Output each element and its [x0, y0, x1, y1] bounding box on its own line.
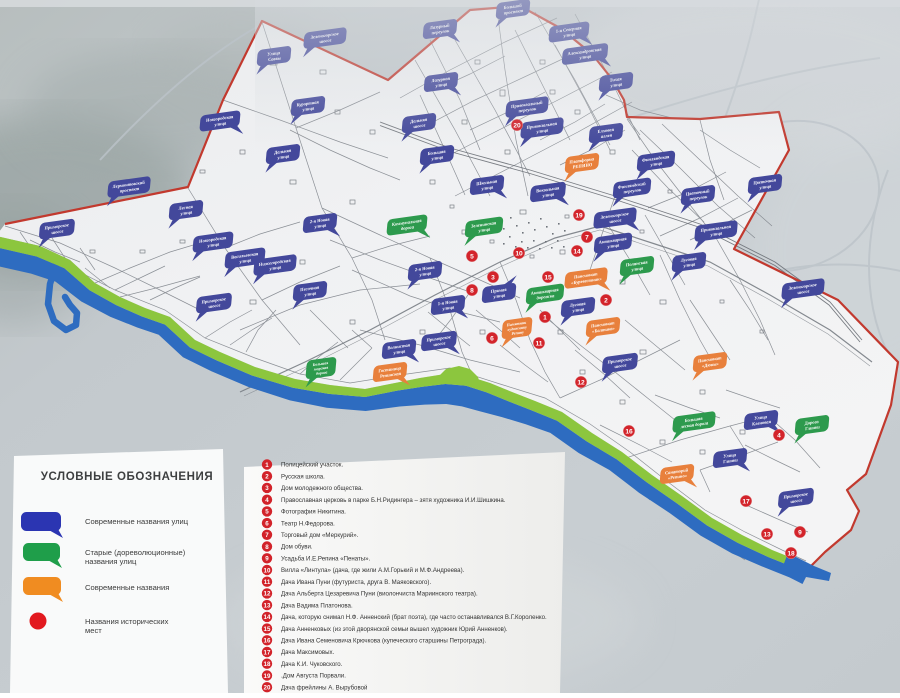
- svg-text:Современные названия: Современные названия: [85, 583, 169, 592]
- svg-text:14: 14: [264, 614, 271, 621]
- svg-text:12: 12: [577, 379, 585, 386]
- svg-text:3: 3: [491, 274, 495, 281]
- svg-text:мест: мест: [85, 626, 102, 635]
- svg-text:17: 17: [742, 498, 750, 505]
- svg-text:12: 12: [264, 591, 271, 598]
- svg-text:2: 2: [604, 297, 608, 304]
- svg-text:9: 9: [798, 529, 802, 536]
- svg-text:13: 13: [264, 602, 271, 609]
- svg-text:5: 5: [470, 253, 474, 260]
- svg-text:.Дом Августа Порвали.: .Дом Августа Порвали.: [281, 673, 346, 680]
- svg-text:15: 15: [264, 626, 271, 633]
- svg-text:7: 7: [265, 532, 269, 539]
- svg-text:Дом обуви.: Дом обуви.: [281, 544, 313, 551]
- svg-text:8: 8: [470, 287, 474, 294]
- svg-text:11: 11: [264, 579, 271, 586]
- svg-text:УСЛОВНЫЕ ОБОЗНАЧЕНИЯ: УСЛОВНЫЕ ОБОЗНАЧЕНИЯ: [41, 471, 214, 483]
- svg-text:16: 16: [264, 638, 271, 645]
- svg-text:20: 20: [264, 685, 271, 692]
- svg-text:Дача, которую снимал Н.Ф. Анне: Дача, которую снимал Н.Ф. Анненский (бра…: [281, 614, 547, 621]
- svg-text:4: 4: [777, 432, 781, 439]
- svg-text:Театр Н.Федорова.: Театр Н.Федорова.: [281, 520, 335, 527]
- svg-text:14: 14: [573, 248, 581, 255]
- svg-text:18: 18: [787, 550, 795, 557]
- svg-text:17: 17: [264, 649, 271, 656]
- svg-text:Дача Вадима Платонова.: Дача Вадима Платонова.: [281, 602, 353, 609]
- svg-text:Дача Ивана Семеновича Крючкова: Дача Ивана Семеновича Крючкова (купеческ…: [281, 638, 487, 645]
- svg-text:Православная церковь в парке Б: Православная церковь в парке Б.Н.Ридинге…: [281, 497, 506, 504]
- svg-text:Вилла «Линтула» (дача, где жил: Вилла «Линтула» (дача, где жили А.М.Горь…: [281, 567, 465, 574]
- svg-text:11: 11: [536, 340, 543, 347]
- svg-text:3: 3: [265, 485, 269, 492]
- svg-text:7: 7: [585, 234, 589, 241]
- svg-text:Полицейский участок.: Полицейский участок.: [281, 462, 343, 469]
- svg-text:Названия исторических: Названия исторических: [85, 617, 169, 626]
- svg-text:13: 13: [763, 531, 771, 538]
- svg-text:4: 4: [265, 497, 269, 504]
- svg-text:Дача фрейлины А. Вырубовой: Дача фрейлины А. Вырубовой: [281, 684, 367, 691]
- svg-text:Современные названия улиц: Современные названия улиц: [85, 517, 189, 526]
- svg-text:15: 15: [544, 274, 552, 281]
- svg-text:Дача Ивана Пуни (футуриста, др: Дача Ивана Пуни (футуриста, друга В. Мая…: [281, 579, 431, 586]
- svg-text:Дача К.И. Чуковского.: Дача К.И. Чуковского.: [281, 661, 343, 668]
- svg-text:16: 16: [625, 428, 633, 435]
- svg-text:1: 1: [543, 314, 547, 321]
- svg-text:Старые (дореволюционные): Старые (дореволюционные): [85, 548, 186, 557]
- svg-text:19: 19: [575, 212, 583, 219]
- svg-text:10: 10: [515, 250, 523, 257]
- svg-text:Торговый дом «Меркурий».: Торговый дом «Меркурий».: [281, 532, 359, 539]
- svg-text:19: 19: [264, 673, 271, 680]
- svg-text:6: 6: [265, 520, 269, 527]
- svg-text:названия улиц: названия улиц: [85, 557, 137, 566]
- svg-text:Дом молодежного общества.: Дом молодежного общества.: [281, 485, 363, 492]
- svg-text:1: 1: [265, 462, 269, 469]
- svg-text:Фотография Никитина.: Фотография Никитина.: [281, 509, 346, 516]
- svg-text:9: 9: [265, 556, 269, 563]
- svg-text:Усадьба И.Е.Репина «Пенаты».: Усадьба И.Е.Репина «Пенаты».: [281, 556, 371, 563]
- svg-text:2: 2: [265, 474, 269, 481]
- svg-text:18: 18: [264, 661, 271, 668]
- svg-text:Дача Альберта Цезаревича Пуни: Дача Альберта Цезаревича Пуни (виолончис…: [281, 591, 478, 598]
- svg-text:Дача Максимовых.: Дача Максимовых.: [281, 649, 335, 656]
- svg-text:8: 8: [265, 544, 269, 551]
- svg-text:6: 6: [490, 335, 494, 342]
- svg-text:Русская школа.: Русская школа.: [281, 473, 325, 480]
- svg-text:Дача Анненковых (из этой дворя: Дача Анненковых (из этой дворянской семь…: [281, 626, 508, 633]
- svg-text:10: 10: [264, 567, 271, 574]
- svg-text:5: 5: [265, 509, 269, 516]
